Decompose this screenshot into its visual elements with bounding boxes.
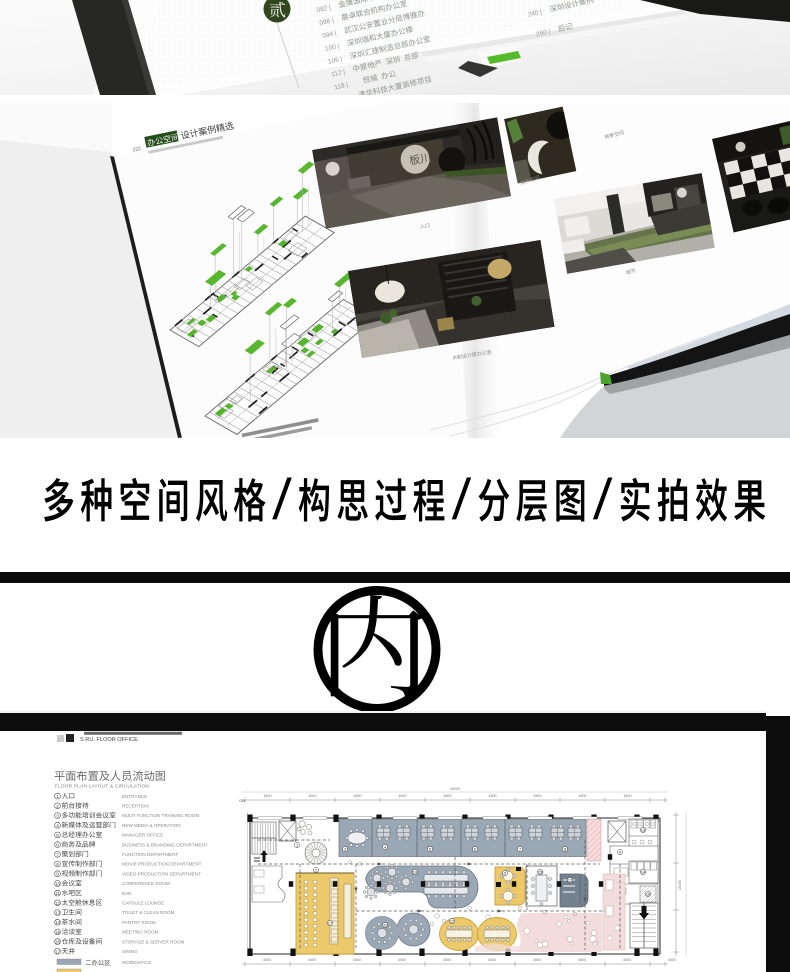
svg-text:MOVIE PRODUCTION DEPARTMENT: MOVIE PRODUCTION DEPARTMENT xyxy=(122,862,202,867)
svg-text:45000: 45000 xyxy=(450,787,460,791)
svg-text:2: 2 xyxy=(315,869,317,873)
svg-text:6: 6 xyxy=(56,843,59,848)
svg-text:4500: 4500 xyxy=(579,794,587,798)
svg-text:GN: GN xyxy=(239,798,245,803)
svg-text:8: 8 xyxy=(56,862,59,867)
svg-text:14: 14 xyxy=(55,920,61,925)
svg-text:13: 13 xyxy=(55,911,61,916)
svg-text:15400: 15400 xyxy=(678,880,682,890)
svg-text:12: 12 xyxy=(55,901,61,906)
svg-text:4500: 4500 xyxy=(353,958,361,962)
svg-text:5: 5 xyxy=(429,848,431,852)
svg-text:4500: 4500 xyxy=(354,794,362,798)
svg-text:8: 8 xyxy=(564,848,566,852)
svg-text:TOILET & CLEAN ROOM: TOILET & CLEAN ROOM xyxy=(122,910,175,915)
svg-text:CONFERENCE ROOM: CONFERENCE ROOM xyxy=(122,881,170,886)
svg-text:MULTI FUNCTION TRAINING ROOM: MULTI FUNCTION TRAINING ROOM xyxy=(122,813,199,818)
svg-text:4500: 4500 xyxy=(399,794,407,798)
svg-text:4500: 4500 xyxy=(488,958,496,962)
svg-text:4500: 4500 xyxy=(444,794,452,798)
svg-text:BAR: BAR xyxy=(122,891,132,896)
svg-text:BUSINESS & BRANDING DEPARTMENT: BUSINESS & BRANDING DEPARTMENT xyxy=(122,842,208,847)
svg-text:4500: 4500 xyxy=(533,958,541,962)
svg-text:ENTRANCE: ENTRANCE xyxy=(122,794,147,799)
svg-text:11: 11 xyxy=(383,924,387,928)
svg-text:4500: 4500 xyxy=(263,958,271,962)
svg-text:VIDEO PRODUCTION DEPARTMENT: VIDEO PRODUCTION DEPARTMENT xyxy=(122,871,201,876)
svg-text:MANAGER OFFICE: MANAGER OFFICE xyxy=(122,833,163,838)
svg-text:CAPSULE LOUNGE: CAPSULE LOUNGE xyxy=(122,901,164,906)
svg-text:PANTRY ROOM: PANTRY ROOM xyxy=(122,920,156,925)
svg-text:FUNCTION DEPARTMENT: FUNCTION DEPARTMENT xyxy=(122,852,178,857)
svg-text:11: 11 xyxy=(55,891,60,896)
svg-text:10: 10 xyxy=(413,871,417,875)
svg-text:4500: 4500 xyxy=(668,958,676,962)
svg-text:9: 9 xyxy=(56,872,59,877)
svg-text:4: 4 xyxy=(384,846,386,850)
svg-text:15: 15 xyxy=(538,871,542,875)
svg-text:WORKSPACE: WORKSPACE xyxy=(122,960,152,965)
svg-text:17: 17 xyxy=(328,922,332,926)
svg-text:4500: 4500 xyxy=(489,794,497,798)
svg-text:16: 16 xyxy=(646,893,650,897)
svg-text:NEW MEDIA & OPERATION: NEW MEDIA & OPERATION xyxy=(122,823,181,828)
svg-text:4500: 4500 xyxy=(578,958,586,962)
svg-text:14: 14 xyxy=(641,871,645,875)
svg-text:RECEPTION: RECEPTION xyxy=(122,804,149,809)
svg-text:3: 3 xyxy=(344,848,346,852)
svg-text:15: 15 xyxy=(55,930,61,935)
svg-text:2: 2 xyxy=(56,804,59,809)
svg-text:12: 12 xyxy=(568,879,572,883)
svg-text:3: 3 xyxy=(56,814,59,819)
svg-text:4500: 4500 xyxy=(264,794,272,798)
svg-text:4500: 4500 xyxy=(624,794,632,798)
svg-text:FLOOR PLAN LAYOUT & CIRCULATIO: FLOOR PLAN LAYOUT & CIRCULATION xyxy=(55,784,149,789)
svg-text:SWING: SWING xyxy=(122,949,138,954)
svg-text:4: 4 xyxy=(56,823,59,828)
svg-text:4500: 4500 xyxy=(308,958,316,962)
svg-text:5: 5 xyxy=(56,833,59,838)
svg-text:16: 16 xyxy=(55,940,61,945)
svg-text:1: 1 xyxy=(296,844,298,848)
svg-text:13: 13 xyxy=(641,829,645,833)
svg-text:S RU. FLOOR OFFICE: S RU. FLOOR OFFICE xyxy=(80,737,138,743)
svg-text:12: 12 xyxy=(450,920,454,924)
svg-text:4500: 4500 xyxy=(443,958,451,962)
svg-text:4500: 4500 xyxy=(623,958,631,962)
svg-text:MEETING ROOM: MEETING ROOM xyxy=(122,930,159,935)
svg-text:7: 7 xyxy=(519,848,521,852)
svg-text:STORAGE & SERVER ROOM: STORAGE & SERVER ROOM xyxy=(122,939,185,944)
svg-text:9: 9 xyxy=(619,851,621,855)
svg-text:4500: 4500 xyxy=(309,794,317,798)
svg-text:10: 10 xyxy=(55,881,61,886)
svg-text:6: 6 xyxy=(474,848,476,852)
svg-text:4500: 4500 xyxy=(534,794,542,798)
svg-text:17: 17 xyxy=(55,949,61,954)
svg-text:4500: 4500 xyxy=(398,958,406,962)
svg-text:5: 5 xyxy=(504,872,506,876)
svg-text:1: 1 xyxy=(56,794,59,799)
svg-text:7: 7 xyxy=(56,852,59,857)
